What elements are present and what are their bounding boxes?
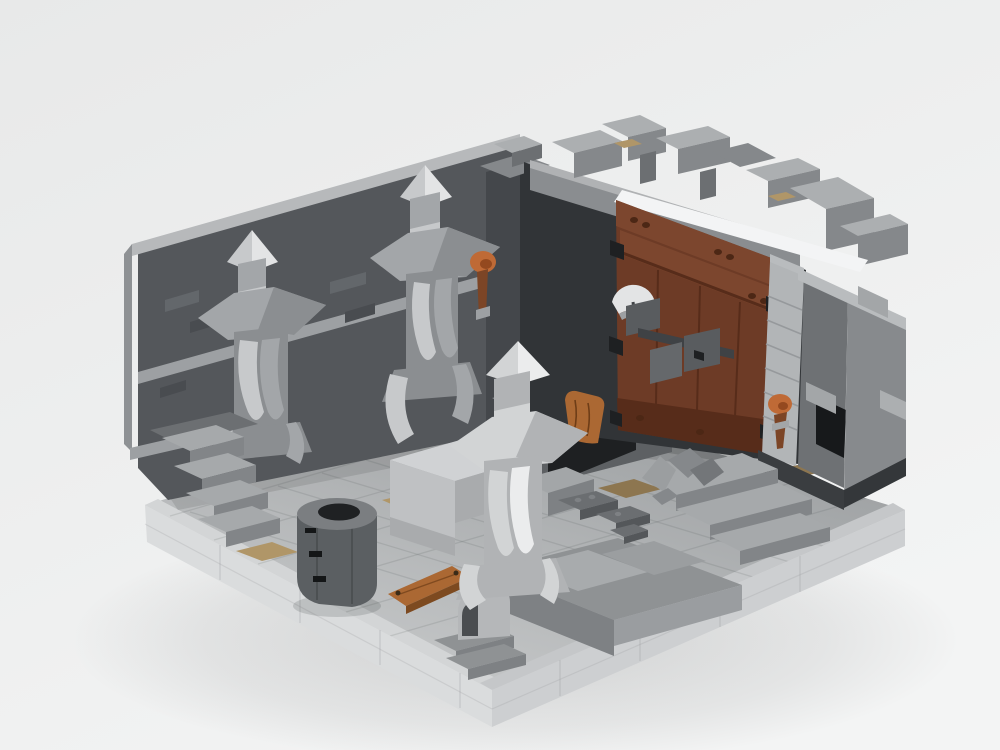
well-hole — [318, 504, 360, 521]
lego-moc-render: LEGO brick model of a ruined castle dung… — [0, 0, 1000, 750]
well: round stone well — [293, 498, 381, 617]
render-canvas: LEGO brick model of a ruined castle dung… — [0, 0, 1000, 750]
